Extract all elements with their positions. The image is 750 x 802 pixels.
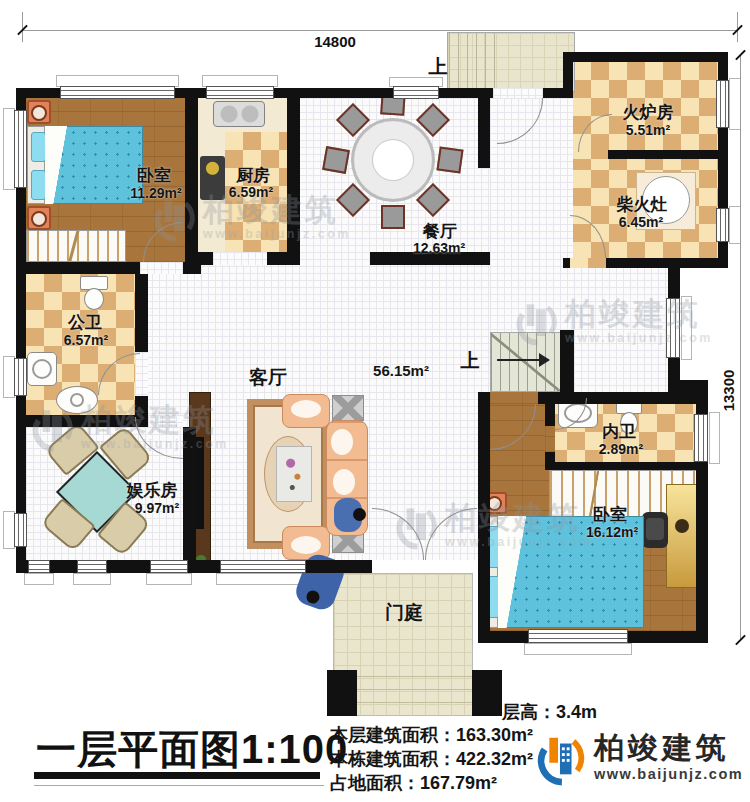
room-area-bedroom2: 16.12m² (586, 524, 638, 540)
end-table (332, 395, 364, 421)
window (716, 80, 729, 128)
window (666, 298, 680, 358)
coffee-table (276, 446, 312, 502)
dining-chair (436, 146, 463, 173)
wall (287, 98, 300, 253)
window (14, 513, 27, 547)
room-area-firewood: 6.45m² (619, 214, 663, 230)
wall (478, 392, 490, 643)
floor-plan-canvas: 卧室 11.29m² 厨房 6.59m² 餐厅 12.63m² 火炉房 5.51… (0, 0, 750, 802)
room-label-firewood: 柴火灶 (617, 193, 668, 216)
door-gap (140, 262, 183, 274)
room-area-kitchen: 6.59m² (229, 184, 273, 200)
stat-building-area: 本栋建筑面积：422.32m² (330, 747, 533, 771)
staircase (490, 332, 562, 392)
room-label-porch: 门庭 (385, 600, 423, 626)
window (694, 414, 708, 462)
window (60, 86, 175, 99)
wall (563, 52, 728, 62)
window (150, 560, 188, 573)
title-underline-thin (34, 785, 324, 786)
dining-chair (381, 205, 405, 229)
brand-logo: 柏竣建筑 www.baijunjz.com (533, 728, 743, 786)
stat-floor-height: 层高：3.4m (502, 700, 597, 724)
dimension-line-top (22, 30, 738, 31)
window (220, 560, 306, 573)
back-steps (449, 33, 499, 89)
stairs-up-label-top: 上 (429, 54, 448, 80)
title-underline (34, 772, 320, 779)
window-sill (709, 412, 720, 464)
window (393, 86, 439, 99)
dimension-line-right (740, 55, 741, 640)
desk-chair (642, 512, 668, 548)
wall (560, 330, 574, 392)
stat-floor-area: 本层建筑面积：163.30m² (330, 723, 533, 747)
wall (608, 150, 718, 159)
drawing-title: 一层平面图1:100 (36, 722, 348, 777)
armchair (282, 394, 330, 428)
door-gap (213, 252, 267, 265)
washing-machine (27, 352, 57, 386)
window (77, 560, 107, 573)
stairs-up-label-mid: 上 (461, 348, 480, 374)
wall (563, 52, 573, 98)
bed (27, 126, 143, 204)
dimension-height: 13300 (720, 356, 737, 426)
kitchen-sink (213, 101, 265, 127)
dimension-width: 14800 (305, 33, 365, 50)
room-label-bedroom1: 卧室 (137, 164, 171, 187)
window-sill (73, 573, 111, 585)
window (528, 629, 628, 643)
brand-name: 柏竣建筑 (594, 733, 743, 763)
porch-pillar (472, 670, 502, 716)
closet (26, 230, 126, 262)
toilet (84, 288, 104, 310)
window-sill (524, 643, 632, 655)
room-area-public-bath: 6.57m² (64, 332, 108, 348)
room-area-entertainment: 9.97m² (135, 500, 179, 516)
stair-arrow-line (497, 359, 541, 361)
room-label-public-bath: 公卫 (68, 311, 102, 334)
room-label-entertainment: 娱乐房 (127, 479, 178, 502)
stat-land-area: 占地面积：167.79m² (330, 771, 497, 795)
window-sill (24, 573, 54, 585)
door-gap (493, 88, 543, 98)
porch-pillar (327, 670, 357, 716)
bath-sink (56, 386, 98, 414)
window (716, 208, 729, 242)
desk (666, 484, 698, 588)
wall (336, 560, 372, 573)
wall (135, 274, 148, 352)
wall (16, 415, 148, 427)
nightstand (27, 206, 51, 230)
room-area-furnace: 5.51m² (626, 122, 670, 138)
room-area-bedroom1: 11.29m² (130, 185, 181, 201)
window-sill (681, 296, 692, 360)
wall (668, 380, 708, 392)
stair-arrow-head (539, 353, 550, 367)
room-label-bedroom2: 卧室 (593, 503, 627, 526)
window (28, 560, 50, 573)
door-gap (490, 392, 538, 404)
window-sill (146, 573, 192, 585)
wall (545, 396, 555, 426)
door-gap (545, 426, 555, 452)
window (14, 110, 27, 188)
door-gap (570, 258, 606, 268)
dining-table (351, 118, 435, 202)
brand-url: www.baijunjz.com (594, 767, 743, 782)
wall (185, 98, 198, 263)
window (14, 358, 27, 396)
brand-logo-icon (533, 728, 585, 786)
wall (478, 88, 490, 168)
room-area-dining: 12.63m² (413, 240, 465, 256)
room-label-furnace: 火炉房 (623, 101, 674, 124)
window (206, 86, 274, 99)
wall (183, 427, 196, 562)
room-label-inner-bath: 内卫 (602, 420, 636, 443)
person-figure (334, 498, 362, 532)
room-area-living: 56.15m² (373, 362, 429, 379)
window-sill (216, 573, 310, 585)
room-area-inner-bath: 2.89m² (599, 441, 643, 457)
stove (200, 156, 225, 200)
dining-chair (322, 146, 350, 174)
nightstand (27, 100, 51, 124)
room-label-living: 客厅 (249, 365, 287, 391)
wall (545, 462, 708, 470)
